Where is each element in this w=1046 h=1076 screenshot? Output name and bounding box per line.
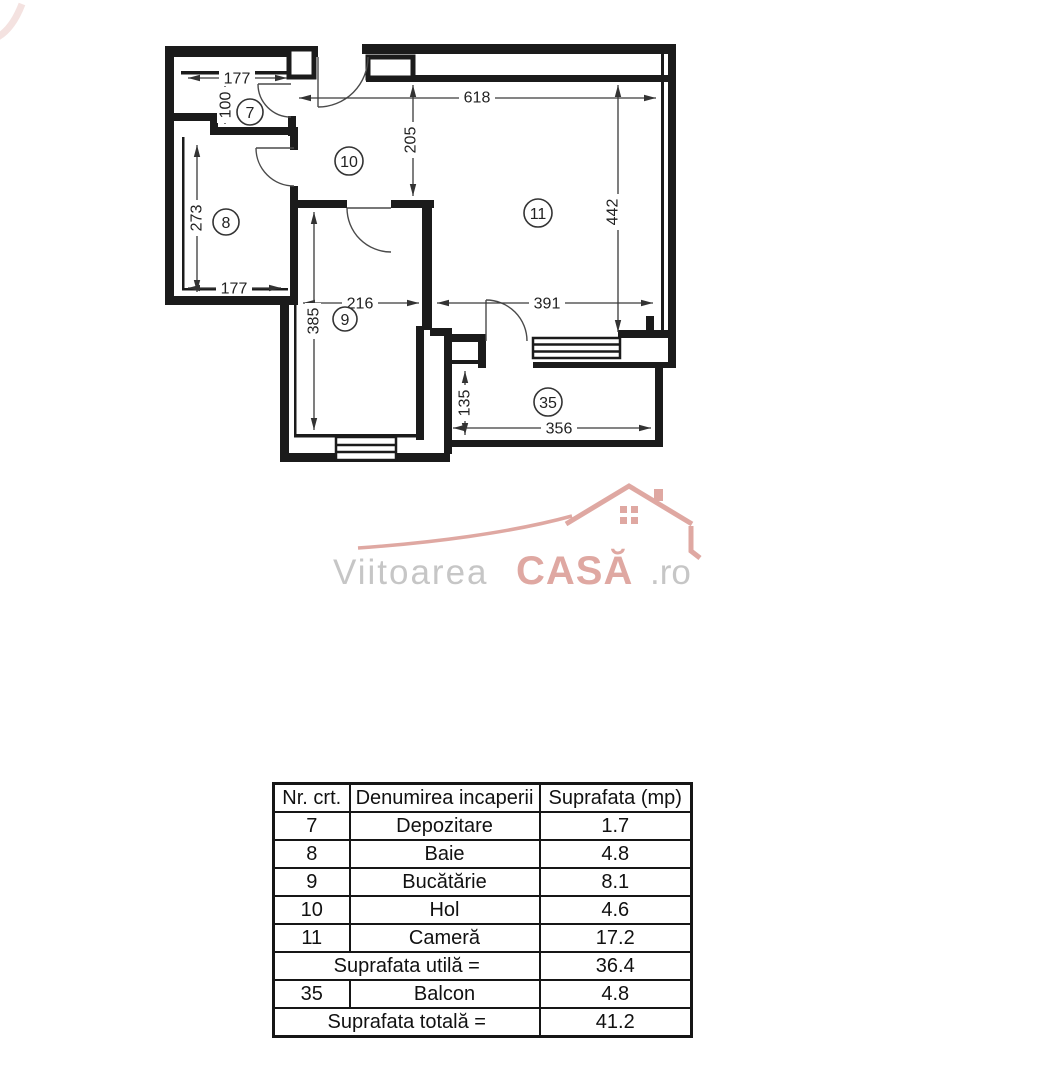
cell-nr: 9 (274, 868, 350, 896)
dim-label-385: 385 (305, 303, 323, 339)
subtotal-label: Suprafata utilă = (274, 952, 540, 980)
svg-text:391: 391 (534, 296, 561, 313)
dim-label-618: 618 (459, 89, 495, 107)
dim-label-205: 205 (402, 122, 420, 158)
header-area: Suprafata (mp) (540, 784, 692, 813)
table-subtotal-row: Suprafata utilă = 36.4 (274, 952, 692, 980)
cell-name: Balcon (350, 980, 540, 1008)
wall (165, 46, 174, 305)
house-icon (358, 486, 700, 558)
cell-area: 8.1 (540, 868, 692, 896)
wall (210, 127, 298, 135)
cell-area: 17.2 (540, 924, 692, 952)
dim-label-177-top: 177 (219, 70, 255, 88)
wall (533, 362, 668, 368)
floor-plan-page: 177 100 273 177 618 205 (0, 0, 1046, 1076)
room8-door (256, 148, 294, 186)
svg-text:35: 35 (539, 395, 557, 412)
logo-text-suffix: .ro (650, 553, 691, 592)
cell-name: Depozitare (350, 812, 540, 840)
svg-text:11: 11 (530, 206, 547, 223)
watermark-fragment (0, 4, 22, 38)
wall (661, 54, 664, 338)
dim-label-391: 391 (529, 295, 565, 313)
wall (416, 326, 424, 440)
total-label: Suprafata totală = (274, 1008, 540, 1037)
room-marker-11: 11 (524, 199, 552, 227)
svg-text:10: 10 (340, 154, 358, 171)
svg-text:273: 273 (189, 205, 206, 232)
svg-text:177: 177 (221, 281, 248, 298)
cell-name: Hol (350, 896, 540, 924)
wall (280, 296, 289, 462)
room-marker-35: 35 (534, 388, 562, 416)
header-nr: Nr. crt. (274, 784, 350, 813)
svg-text:385: 385 (306, 308, 323, 335)
wall (450, 334, 486, 342)
room-area-table: Nr. crt. Denumirea incaperii Suprafata (… (272, 782, 693, 1038)
house-windows (620, 506, 638, 524)
wall (618, 330, 668, 338)
balcony-wall (444, 334, 452, 454)
entry-tab (289, 49, 314, 77)
entry-pier (368, 57, 413, 78)
svg-text:618: 618 (464, 90, 491, 107)
table-header-row: Nr. crt. Denumirea incaperii Suprafata (… (274, 784, 692, 813)
logo: Viitoarea CASĂ .ro (333, 486, 700, 593)
balcony-wall (444, 440, 663, 447)
room-marker-8: 8 (213, 209, 239, 235)
total-value: 41.2 (540, 1008, 692, 1037)
dim-label-177-bottom: 177 (216, 280, 252, 298)
floor-plan-drawing: 177 100 273 177 618 205 (0, 0, 1046, 770)
room-markers: 7 8 10 9 11 35 (213, 99, 562, 416)
table-row: 9 Bucătărie 8.1 (274, 868, 692, 896)
cell-nr: 10 (274, 896, 350, 924)
table-row: 10 Hol 4.6 (274, 896, 692, 924)
cell-area: 4.6 (540, 896, 692, 924)
dim-label-135: 135 (456, 385, 474, 421)
logo-text-accent: CASĂ (516, 548, 633, 593)
wall (288, 116, 296, 136)
svg-text:135: 135 (457, 390, 474, 417)
kitchen-window (336, 437, 396, 460)
balcony-window (533, 338, 620, 358)
room9-door (347, 208, 391, 252)
cell-area: 4.8 (540, 840, 692, 868)
wall (668, 44, 676, 368)
dim-label-273: 273 (188, 200, 206, 236)
table-row: 8 Baie 4.8 (274, 840, 692, 868)
svg-text:177: 177 (224, 71, 251, 88)
wall (646, 316, 654, 334)
svg-text:7: 7 (246, 105, 255, 122)
cell-nr: 35 (274, 980, 350, 1008)
svg-text:100: 100 (218, 92, 235, 119)
dim-label-442: 442 (604, 194, 622, 230)
table-total-row: Suprafata totală = 41.2 (274, 1008, 692, 1037)
cell-nr: 7 (274, 812, 350, 840)
svg-text:356: 356 (546, 421, 573, 438)
svg-text:442: 442 (605, 199, 622, 226)
cell-nr: 8 (274, 840, 350, 868)
wall (452, 360, 486, 364)
cell-name: Cameră (350, 924, 540, 952)
logo-text-primary: Viitoarea (333, 553, 489, 592)
dim-label-356: 356 (541, 420, 577, 438)
room-marker-7: 7 (237, 99, 263, 125)
cell-nr: 11 (274, 924, 350, 952)
balcony-wall (655, 362, 663, 447)
table-row: 7 Depozitare 1.7 (274, 812, 692, 840)
cell-area: 4.8 (540, 980, 692, 1008)
table-row: 35 Balcon 4.8 (274, 980, 692, 1008)
room-marker-9: 9 (333, 307, 357, 331)
room-marker-10: 10 (335, 147, 363, 175)
wall (422, 200, 432, 330)
svg-text:205: 205 (403, 127, 420, 154)
subtotal-value: 36.4 (540, 952, 692, 980)
svg-text:8: 8 (222, 215, 231, 232)
dim-label-100: 100 (217, 87, 235, 123)
svg-text:9: 9 (341, 312, 350, 329)
entry-door (318, 57, 368, 107)
cell-name: Bucătărie (350, 868, 540, 896)
cell-name: Baie (350, 840, 540, 868)
header-name: Denumirea incaperii (350, 784, 540, 813)
wall (362, 44, 676, 54)
cell-area: 1.7 (540, 812, 692, 840)
balcony-door (486, 300, 527, 341)
table-row: 11 Cameră 17.2 (274, 924, 692, 952)
wall (294, 200, 347, 208)
